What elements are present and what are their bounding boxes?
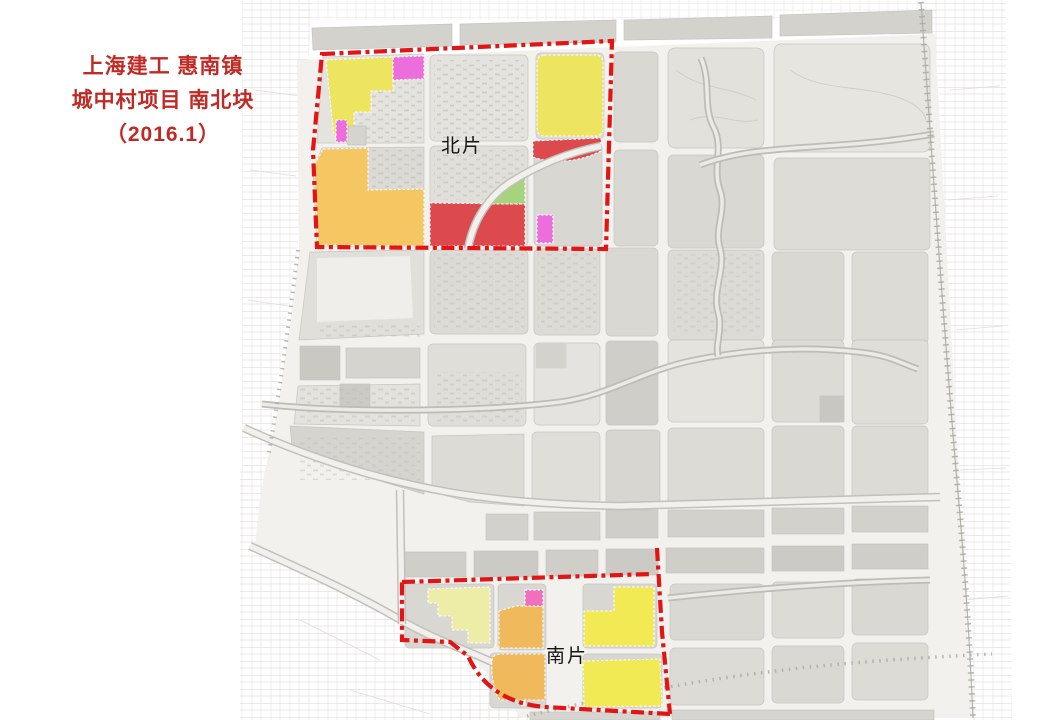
city-block: [606, 430, 660, 506]
city-block: [852, 252, 928, 344]
parcel-orange-upper: [499, 606, 543, 648]
city-block: [820, 396, 844, 422]
city-block: [772, 646, 844, 703]
city-block: [852, 506, 928, 532]
city-block: [614, 150, 658, 246]
city-block: [486, 514, 528, 540]
north-area-label: 北片: [441, 135, 483, 157]
building-texture: [370, 150, 424, 188]
city-block: [668, 510, 764, 537]
city-block: [668, 428, 764, 505]
building-texture: [434, 254, 524, 330]
city-block: [346, 348, 420, 378]
connector-road-fill: [400, 490, 402, 624]
city-block: [772, 252, 844, 342]
slide: 北片 南片 上海建工 惠南镇 城中村项目 南北块 （2016.1）: [0, 0, 1040, 720]
title-line-1: 上海建工 惠南镇: [48, 50, 278, 84]
city-block: [772, 546, 844, 571]
city-block: [546, 550, 598, 576]
building-texture: [538, 254, 596, 330]
south-area-label: 南片: [546, 645, 588, 667]
building-texture: [320, 324, 420, 338]
parcel-yellow-lower-east: [583, 659, 662, 707]
city-block: [312, 24, 452, 50]
city-block: [534, 343, 600, 425]
title-line-2: 城中村项目 南北块: [48, 84, 278, 118]
city-block: [852, 643, 928, 700]
city-block: [606, 510, 658, 538]
city-block: [780, 10, 932, 36]
city-block: [772, 508, 844, 534]
building-texture: [436, 372, 522, 422]
parcel-pink-small: [525, 590, 543, 606]
city-block: [300, 346, 340, 380]
city-block: [606, 549, 658, 575]
city-block: [666, 548, 764, 573]
city-block: [672, 710, 934, 720]
city-block: [532, 432, 600, 506]
parcel-magenta-southeast: [537, 215, 553, 243]
city-block: [534, 512, 600, 540]
building-texture: [434, 60, 524, 138]
city-block: [404, 552, 466, 577]
parcel-magenta-strip: [336, 120, 347, 142]
city-block: [852, 579, 928, 635]
city-block: [772, 426, 844, 502]
city-block: [852, 426, 928, 500]
city-block: [774, 158, 930, 250]
city-block: [852, 544, 928, 569]
title-block: 上海建工 惠南镇 城中村项目 南北块 （2016.1）: [48, 50, 278, 152]
city-block: [624, 16, 772, 40]
gray-parcel: [348, 126, 366, 145]
parcel-yellow-northeast: [537, 55, 603, 136]
parcel-magenta-northwest: [393, 56, 424, 80]
city-block: [317, 256, 413, 322]
parcel-orange-lower: [492, 654, 545, 700]
city-block: [606, 248, 658, 336]
city-block: [670, 648, 764, 705]
city-block: [614, 52, 658, 142]
title-line-3: （2016.1）: [48, 118, 278, 152]
city-block: [474, 551, 538, 577]
